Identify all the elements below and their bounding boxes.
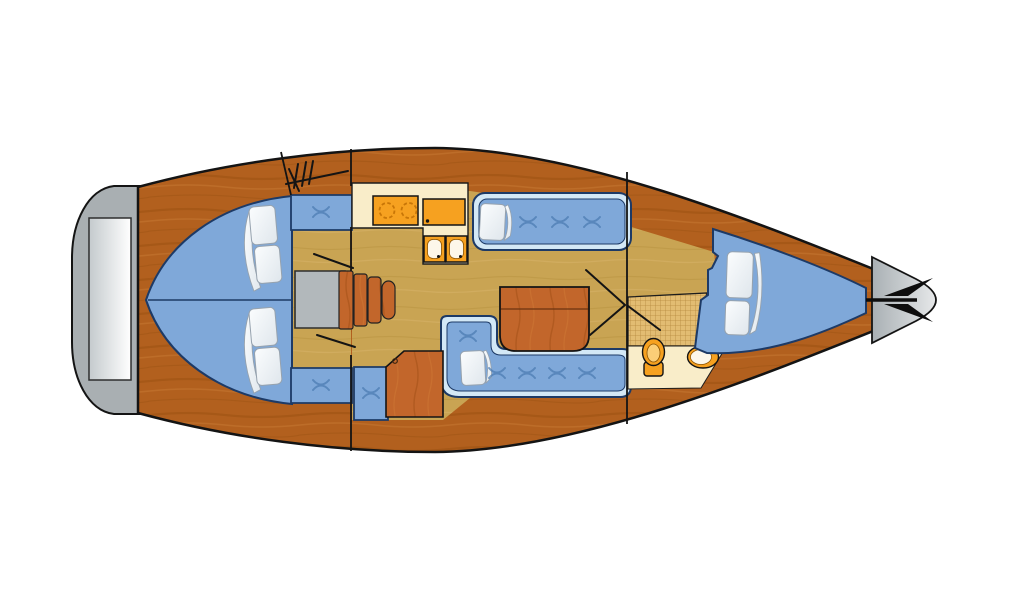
pillow bbox=[254, 347, 282, 386]
table-top bbox=[500, 287, 589, 351]
pillow bbox=[249, 205, 278, 245]
toilet bbox=[643, 339, 665, 377]
stern-swim-platform bbox=[72, 186, 140, 414]
settee-port-pillow-group bbox=[479, 203, 513, 241]
toilet-seat bbox=[647, 344, 660, 362]
companionway-step bbox=[354, 274, 367, 326]
saloon-table bbox=[500, 287, 589, 351]
companionway-step bbox=[368, 277, 381, 323]
icebox-hinge bbox=[426, 219, 429, 222]
engine-box bbox=[295, 271, 345, 328]
settee-port bbox=[473, 193, 631, 250]
chart-table-top bbox=[386, 351, 443, 417]
companionway-step bbox=[339, 271, 353, 329]
pillow bbox=[726, 252, 754, 299]
pillow bbox=[254, 245, 282, 284]
settee-starboard-pillow-group bbox=[460, 350, 492, 386]
sink-drain bbox=[459, 255, 462, 258]
yacht-floor-plan bbox=[0, 0, 1024, 600]
chart-table bbox=[386, 351, 443, 417]
pillow bbox=[249, 307, 278, 347]
galley-sink-double bbox=[424, 236, 467, 262]
stove bbox=[373, 196, 418, 225]
icebox bbox=[423, 199, 465, 225]
swim-platform-step bbox=[89, 218, 131, 380]
companionway bbox=[295, 271, 395, 329]
sink-drain bbox=[437, 255, 440, 258]
yacht-floor-plan-canvas bbox=[0, 0, 1024, 600]
pillow bbox=[460, 350, 486, 385]
head-tiled-floor bbox=[628, 293, 707, 346]
pillow bbox=[479, 203, 506, 240]
companionway-step bbox=[382, 281, 395, 319]
pillow bbox=[725, 301, 750, 336]
